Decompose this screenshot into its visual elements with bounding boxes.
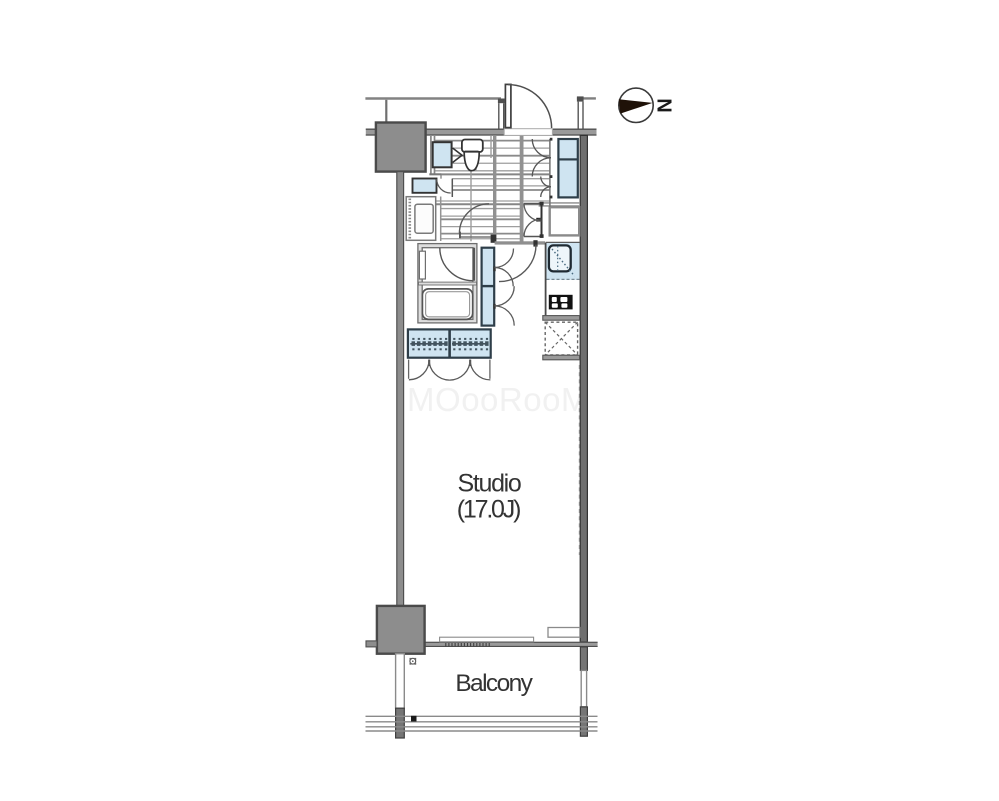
svg-text:N: N [653, 98, 675, 112]
svg-text:MOooRooM: MOooRooM [407, 381, 589, 418]
svg-text:Balcony: Balcony [455, 670, 533, 697]
svg-text:Studio: Studio [457, 470, 520, 498]
svg-text:(17.0J): (17.0J) [457, 496, 520, 524]
